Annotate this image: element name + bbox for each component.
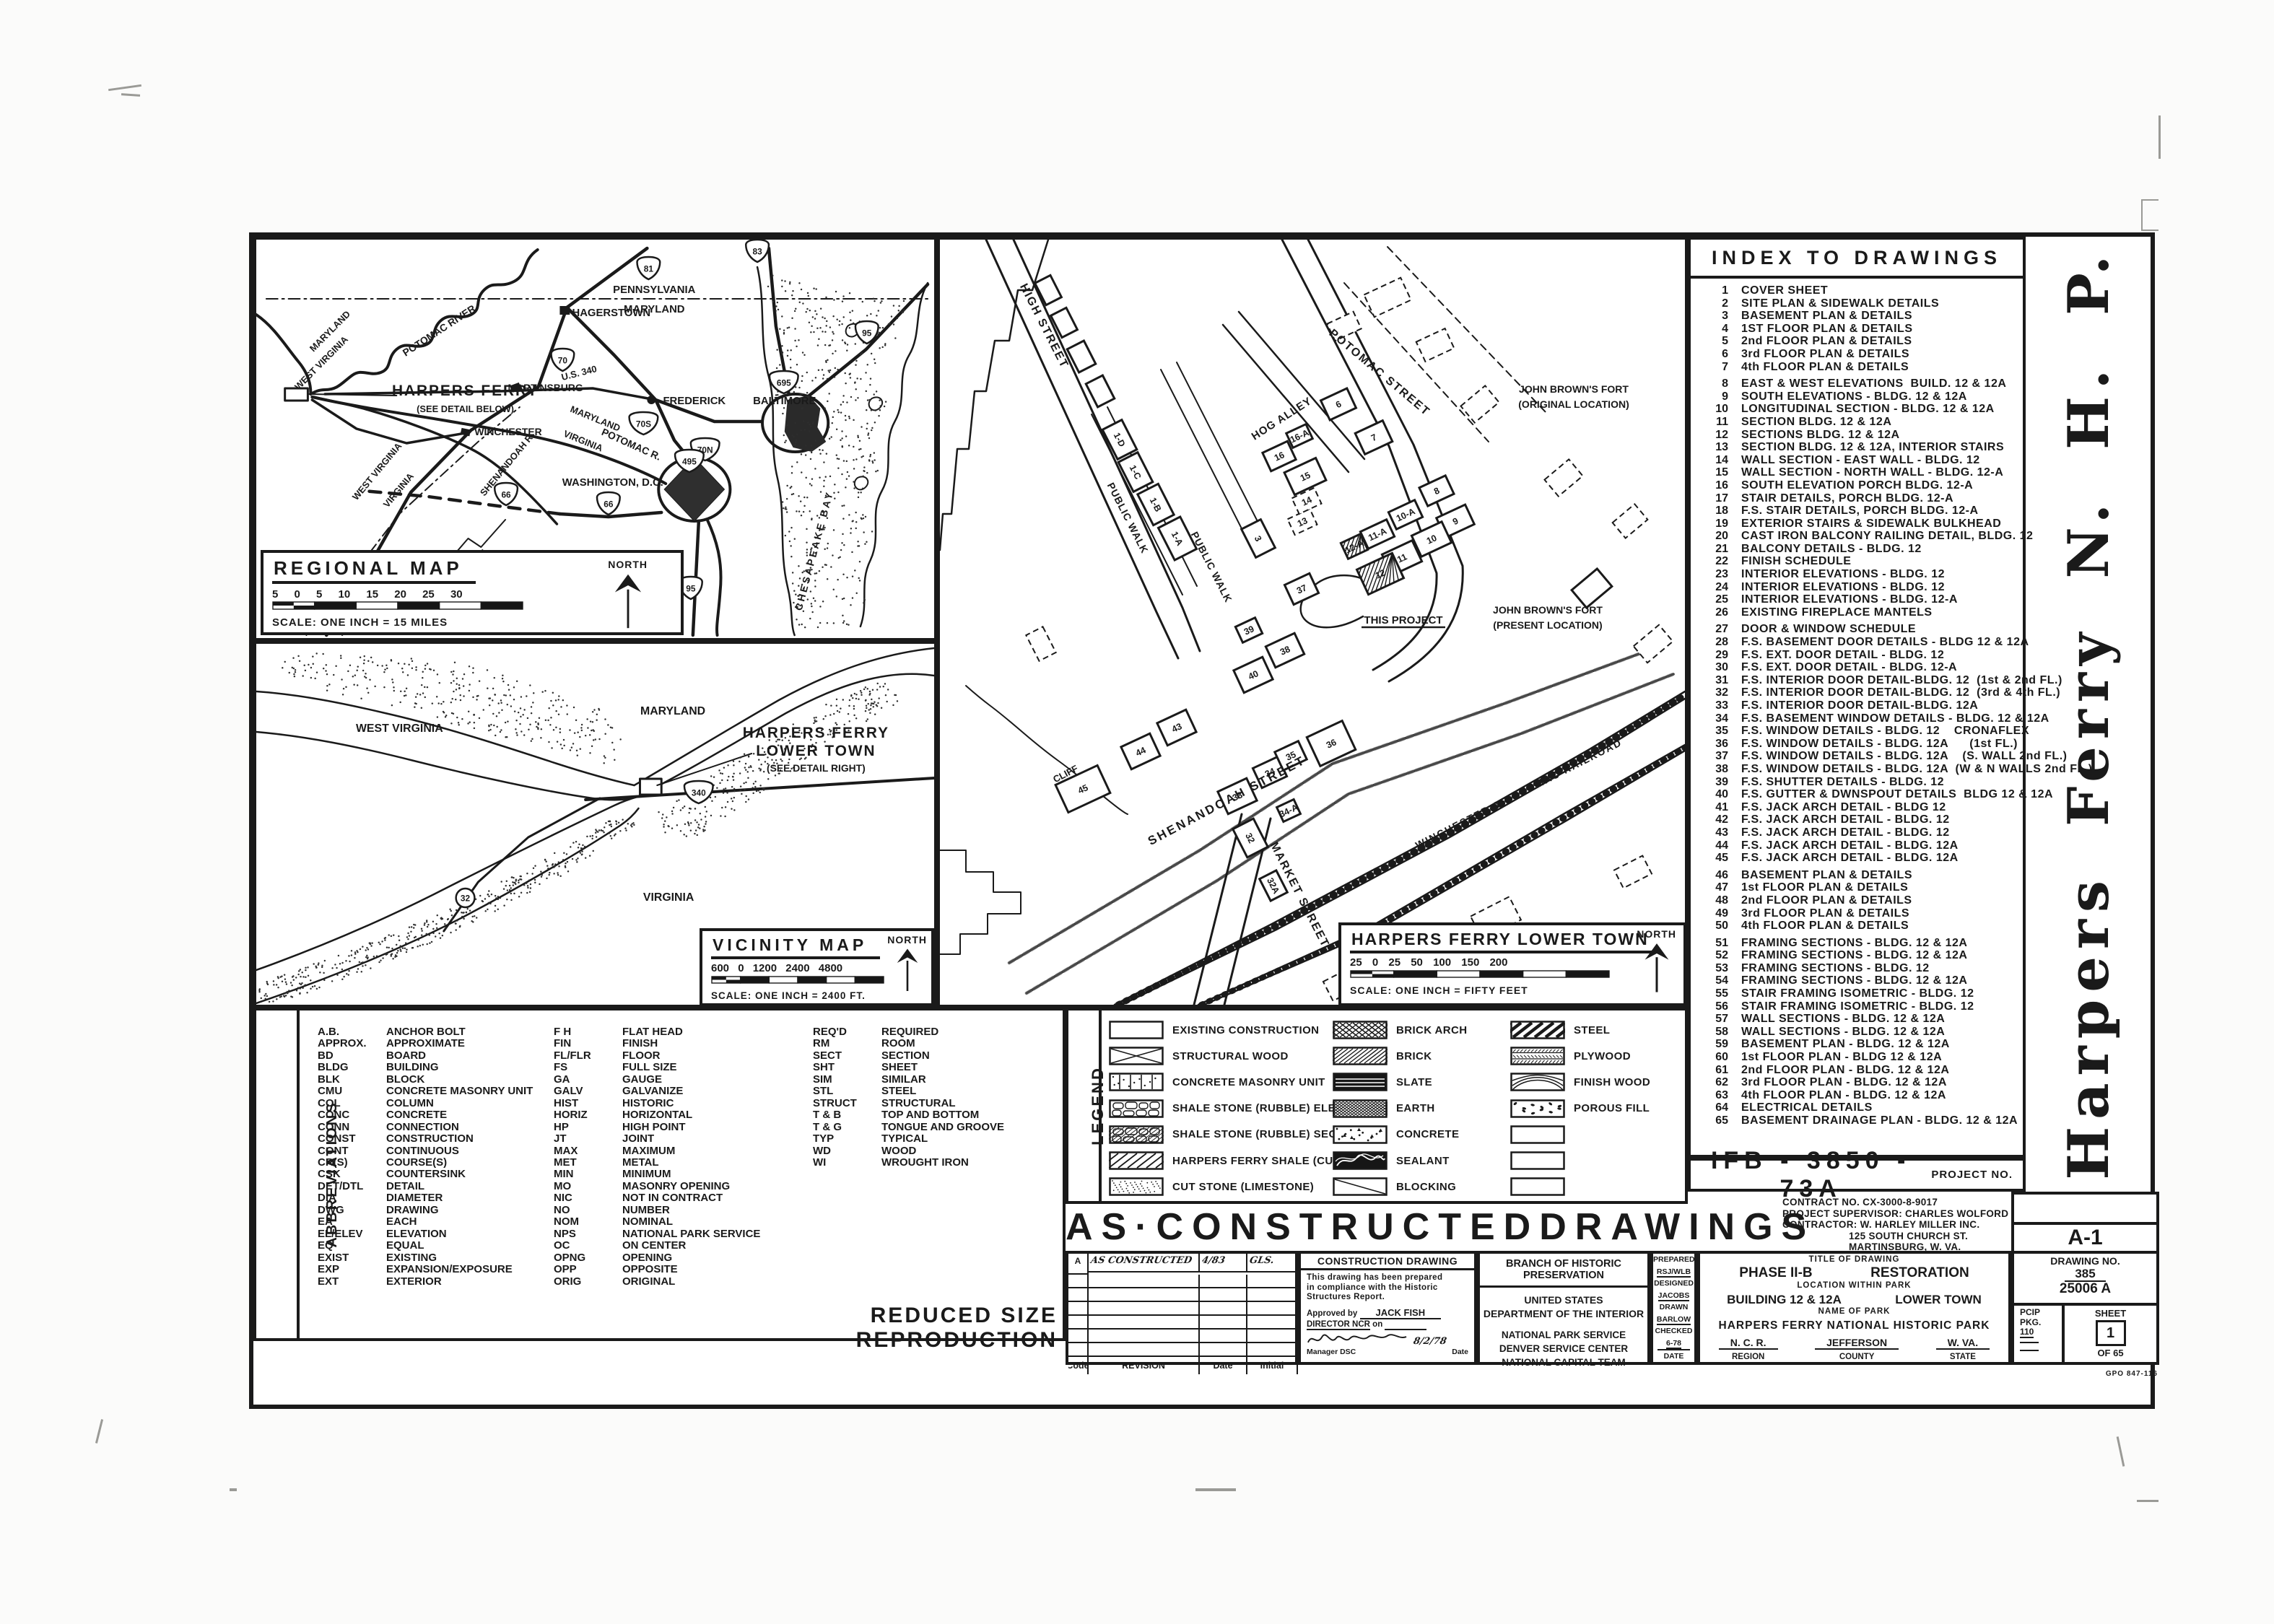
revision-cell	[1068, 1330, 1089, 1343]
legend-item	[1510, 1148, 1650, 1174]
abbreviation-row: STLSTEEL	[813, 1086, 1004, 1097]
index-item-number: 5	[1691, 335, 1728, 348]
abbreviation-row: RMROOM	[813, 1038, 1004, 1049]
lower-town-scale-bar	[1350, 970, 1610, 978]
legend-swatch-plywood	[1510, 1047, 1565, 1065]
building	[1461, 385, 1499, 422]
legend-label: HARPERS FERRY SHALE (CUT)	[1172, 1155, 1344, 1167]
abbreviation: MIN	[554, 1169, 622, 1180]
abbreviation-term: BLOCK	[386, 1074, 424, 1086]
branch-line: UNITED STATES	[1480, 1293, 1647, 1307]
map-label: VIRGINIA	[643, 891, 694, 904]
abbreviation: OPNG	[554, 1252, 622, 1264]
index-item-title: 2nd FLOOR PLAN & DETAILS	[1741, 335, 1912, 348]
index-item: 37F.S. WINDOW DETAILS - BLDG. 12A (S. WA…	[1691, 750, 2023, 763]
index-item: 33F.S. INTERIOR DOOR DETAIL-BLDG. 12A	[1691, 699, 2023, 712]
pkg-number: 110	[2020, 1327, 2034, 1338]
legend-swatch-crosshatch	[1333, 1021, 1388, 1039]
index-item-number: 38	[1691, 763, 1728, 776]
branch-line: DEPARTMENT OF THE INTERIOR	[1480, 1307, 1647, 1321]
abbreviation: CSK	[318, 1169, 386, 1180]
region-value: N. C. R.	[1719, 1337, 1778, 1350]
legend-col-3: STEELPLYWOODFINISH WOODPOROUS FILL	[1510, 1017, 1650, 1200]
abbrev-col-2: F HFLAT HEADFINFINISHFL/FLRFLOORFSFULL S…	[554, 1026, 760, 1288]
index-item-number: 60	[1691, 1051, 1728, 1064]
main-title-part2: DRAWINGS	[1539, 1205, 1815, 1249]
index-item: 15WALL SECTION - NORTH WALL - BLDG. 12-A	[1691, 466, 2023, 479]
county-value: JEFFERSON	[1815, 1337, 1899, 1350]
prepared-value-text: RSJ/WLB	[1657, 1267, 1691, 1278]
index-item-number: 65	[1691, 1114, 1728, 1127]
abbreviation-term: DIAMETER	[386, 1192, 443, 1204]
abbreviation-row: REQ'DREQUIRED	[813, 1026, 1004, 1038]
index-item: 12SECTIONS BLDG. 12 & 12A	[1691, 429, 2023, 442]
legend-item: HARPERS FERRY SHALE (CUT)	[1109, 1148, 1344, 1174]
abbreviation: NO	[554, 1205, 622, 1216]
index-item: 45F.S. JACK ARCH DETAIL - BLDG. 12A	[1691, 852, 2023, 865]
index-item-title: 1st FLOOR PLAN - BLDG 12 & 12A	[1741, 1051, 1942, 1064]
building-1-D: 1-D	[1102, 420, 1137, 460]
index-item-number: 2	[1691, 297, 1728, 310]
abbreviation-row: WDWOOD	[813, 1145, 1004, 1157]
scan-artifact	[1195, 1488, 1236, 1491]
index-item-number: 62	[1691, 1076, 1728, 1089]
index-item-title: 4th FLOOR PLAN - BLDG. 12 & 12A	[1741, 1089, 1946, 1102]
index-item-number: 30	[1691, 661, 1728, 674]
index-item-number: 21	[1691, 543, 1728, 556]
index-item-title: BASEMENT PLAN & DETAILS	[1741, 310, 1912, 323]
legend-swatch-slate	[1333, 1073, 1388, 1091]
abbreviation: CMU	[318, 1086, 386, 1097]
index-item: 74th FLOOR PLAN & DETAILS	[1691, 361, 2023, 374]
svg-text:66: 66	[604, 499, 614, 509]
index-item-title: EAST & WEST ELEVATIONS BUILD. 12 & 12A	[1741, 377, 2006, 390]
legend-swatch-stipple	[1109, 1177, 1164, 1196]
prepared-value: JACOBS	[1653, 1290, 1694, 1302]
director-title: DIRECTOR NCR	[1307, 1320, 1370, 1330]
building-40: 40	[1234, 657, 1273, 692]
sheet-of-label: OF 65	[2065, 1348, 2156, 1358]
branch-line: DENVER SERVICE CENTER	[1480, 1342, 1647, 1355]
branch-line: NATIONAL CAPITAL TEAM	[1480, 1355, 1647, 1369]
index-item: 56STAIR FRAMING ISOMETRIC - BLDG. 12	[1691, 1000, 2023, 1013]
index-item-title: 1st FLOOR PLAN & DETAILS	[1741, 881, 1908, 894]
index-item-title: F.S. JACK ARCH DETAIL - BLDG. 12	[1741, 826, 1950, 839]
index-item: 36F.S. WINDOW DETAILS - BLDG. 12A (1st F…	[1691, 738, 2023, 751]
construction-box-title: CONSTRUCTION DRAWING	[1301, 1255, 1474, 1270]
index-item-title: 1ST FLOOR PLAN & DETAILS	[1741, 323, 1912, 336]
index-item: 11SECTION BLDG. 12 & 12A	[1691, 416, 2023, 429]
index-item-title: ELECTRICAL DETAILS	[1741, 1101, 1873, 1114]
abbreviation-term: BUILDING	[386, 1062, 439, 1073]
index-item: 30F.S. EXT. DOOR DETAIL - BLDG. 12-A	[1691, 661, 2023, 674]
abbreviation-term: MASONRY OPENING	[622, 1181, 730, 1192]
index-item-number: 35	[1691, 725, 1728, 738]
abbreviation-term: TYPICAL	[881, 1133, 928, 1145]
sheet-count-box: SHEET 1 OF 65	[2065, 1306, 2156, 1362]
hagerstown-city-dot	[559, 306, 570, 315]
index-item: 623rd FLOOR PLAN - BLDG. 12 & 12A	[1691, 1076, 2023, 1089]
abbreviation-row: BDBOARD	[318, 1050, 533, 1062]
index-item-number: 48	[1691, 894, 1728, 907]
state-label: STATE	[1950, 1353, 1976, 1361]
abbreviation-row: FL/FLRFLOOR	[554, 1050, 760, 1062]
index-item-title: DOOR & WINDOW SCHEDULE	[1741, 623, 1916, 636]
lower-town-map-panel: 1-D1-C1-B1-A367891010-A1111-A1212-A13141…	[937, 237, 1688, 1008]
park-name-strip: Harpers Ferry N. H. P.	[2018, 237, 2159, 1192]
abbreviation: ORIG	[554, 1276, 622, 1288]
legend-swatch-blank	[1109, 1021, 1164, 1039]
pcip-label: PCIP	[2020, 1308, 2062, 1318]
abbreviation: T & B	[813, 1109, 881, 1121]
abbreviation-term: WROUGHT IRON	[881, 1157, 969, 1169]
contractor: CONTRACTOR: W. HARLEY MILLER INC.	[1782, 1219, 2009, 1231]
abbreviation-term: CONTINUOUS	[386, 1145, 459, 1157]
sheet-label: SHEET	[2065, 1308, 2156, 1319]
legend-item: STEEL	[1510, 1017, 1650, 1043]
revision-cell	[1200, 1330, 1247, 1343]
route-shield-83: 83	[746, 240, 769, 262]
abbreviation-row: MOMASONRY OPENING	[554, 1181, 760, 1192]
abbreviation-row: FSFULL SIZE	[554, 1062, 760, 1073]
building-39: 39	[1235, 618, 1262, 642]
index-item: 24INTERIOR ELEVATIONS - BLDG. 12	[1691, 581, 2023, 594]
abbreviation: COL	[318, 1098, 386, 1109]
index-item: 38F.S. WINDOW DETAILS - BLDG. 12A (W & N…	[1691, 763, 2023, 776]
abbreviation: WD	[813, 1145, 881, 1157]
abbreviation-row: NOMNOMINAL	[554, 1216, 760, 1228]
legend-item: STRUCTURAL WOOD	[1109, 1043, 1344, 1069]
svg-text:495: 495	[682, 456, 697, 466]
revision-cell	[1247, 1330, 1298, 1343]
map-label: FREDERICK	[663, 395, 726, 407]
index-item-number: 27	[1691, 623, 1728, 636]
index-item-number: 11	[1691, 416, 1728, 429]
regional-map-north: NORTH	[608, 559, 648, 633]
building-3: 3	[1242, 520, 1276, 558]
abbreviation-term: HORIZONTAL	[622, 1109, 692, 1121]
building	[1416, 328, 1455, 362]
index-item: 65BASEMENT DRAINAGE PLAN - BLDG. 12 & 12…	[1691, 1114, 2023, 1127]
abbreviation: REQ'D	[813, 1026, 881, 1038]
map-label: HARPERS FERRY	[392, 383, 539, 399]
index-item-number: 26	[1691, 606, 1728, 619]
abbreviation: F H	[554, 1026, 622, 1038]
prepared-label: PREPARED	[1653, 1254, 1694, 1266]
project-number-box: IFB - 3850 - 73A PROJECT NO.	[1688, 1158, 2026, 1192]
index-item-title: F.S. JACK ARCH DETAIL - BLDG. 12A	[1741, 852, 1959, 865]
legend-label: POROUS FILL	[1574, 1102, 1650, 1114]
building-34-A: 34-A	[1276, 799, 1301, 821]
map-label: WINCHESTER & POTOMAC RAILROAD	[1413, 736, 1624, 851]
index-item-title: INTERIOR ELEVATIONS - BLDG. 12	[1741, 581, 1945, 594]
abbreviation: OC	[554, 1240, 622, 1252]
abbreviation-row: DIADIAMETER	[318, 1192, 533, 1204]
shenandoah-shore-1	[256, 797, 637, 970]
legend-col-2: BRICK ARCHBRICKSLATEEARTHCONCRETESEALANT…	[1333, 1017, 1467, 1200]
legend-label: CONCRETE	[1396, 1128, 1459, 1140]
legend-label: BRICK	[1396, 1050, 1432, 1062]
abbreviation: BLDG	[318, 1062, 386, 1073]
index-item-title: LONGITUDINAL SECTION - BLDG. 12 & 12A	[1741, 403, 1995, 416]
revision-cell	[1089, 1343, 1200, 1357]
index-item-number: 34	[1691, 712, 1728, 725]
contract-no: CONTRACT NO. CX-3000-8-9017	[1782, 1197, 2009, 1208]
abbreviation-term: STEEL	[881, 1086, 916, 1097]
abbreviation-row: SHTSHEET	[813, 1062, 1004, 1073]
pcip-pkg-box: PCIP PKG. 110	[2014, 1306, 2065, 1362]
index-item-title: F.S. JACK ARCH DETAIL - BLDG. 12A	[1741, 839, 1959, 852]
branch-title: BRANCH OF HISTORIC PRESERVATION	[1480, 1254, 1647, 1288]
abbreviation-row: MAXMAXIMUM	[554, 1145, 760, 1157]
abbreviation-term: CONSTRUCTION	[386, 1133, 474, 1145]
route-shield-695: 695	[770, 371, 798, 393]
abbreviation-row: TYPTYPICAL	[813, 1133, 1004, 1145]
legend-swatch-porous	[1510, 1099, 1565, 1118]
revision-cell: Code	[1068, 1357, 1089, 1374]
abbreviation-term: OPPOSITE	[622, 1264, 678, 1275]
legend-item: POROUS FILL	[1510, 1096, 1650, 1122]
approval-date-handwritten: 8/2/78	[1413, 1336, 1447, 1347]
legend-item: BLOCKING	[1333, 1174, 1467, 1200]
abbreviation: EL/ELEV	[318, 1228, 386, 1240]
secondary-road	[444, 798, 600, 931]
index-item: 46BASEMENT PLAN & DETAILS	[1691, 869, 2023, 882]
legend-label: STRUCTURAL WOOD	[1172, 1050, 1289, 1062]
index-item: 57WALL SECTIONS - BLDG. 12 & 12A	[1691, 1013, 2023, 1026]
index-item-number: 17	[1691, 492, 1728, 505]
index-item-title: SOUTH ELEVATIONS - BLDG. 12 & 12A	[1741, 390, 1967, 403]
legend-swatch-cmu	[1109, 1073, 1164, 1091]
legend-item: FINISH WOOD	[1510, 1069, 1650, 1095]
north-arrow-icon	[612, 570, 644, 631]
svg-text:95: 95	[686, 583, 696, 593]
abbreviation-term: FULL SIZE	[622, 1062, 677, 1073]
abbreviation: BLK	[318, 1074, 386, 1086]
lower-town-label: LOWER TOWN	[1895, 1293, 1982, 1307]
abbreviation: NOM	[554, 1216, 622, 1228]
abbreviation: HORIZ	[554, 1109, 622, 1121]
abbreviation-term: EACH	[386, 1216, 417, 1228]
index-item-title: F.S. STAIR DETAILS, PORCH BLDG. 12-A	[1741, 505, 1979, 518]
index-item-title: STAIR DETAILS, PORCH BLDG. 12-A	[1741, 492, 1953, 505]
lower-town-scale-note: SCALE: ONE INCH = FIFTY FEET	[1350, 985, 1675, 996]
drawing-number-column: A-1 DRAWING NO. 385 25006 A PCIP PKG. 11…	[2011, 1192, 2159, 1365]
index-item-title: WALL SECTIONS - BLDG. 12 & 12A	[1741, 1013, 1945, 1026]
index-item-title: BALCONY DETAILS - BLDG. 12	[1741, 543, 1922, 556]
construction-note-line: Structures Report.	[1307, 1293, 1468, 1303]
revision-cell: Initial	[1247, 1357, 1298, 1374]
date-label: Date	[1452, 1348, 1468, 1356]
abbreviation-term: COURSE(S)	[386, 1157, 447, 1169]
map-label: (PRESENT LOCATION)	[1493, 619, 1602, 631]
abbreviation-row: SECTSECTION	[813, 1050, 1004, 1062]
shenandoah-river	[313, 397, 557, 524]
abbreviation-term: EXISTING	[386, 1252, 437, 1264]
index-item-number: 58	[1691, 1026, 1728, 1039]
index-item-number: 39	[1691, 776, 1728, 789]
abbreviation: T & G	[813, 1122, 881, 1133]
index-item: 14WALL SECTION - EAST WALL - BLDG. 12	[1691, 454, 2023, 467]
legend-side-label: LEGEND	[1089, 1066, 1107, 1145]
abbreviation-row: EXISTEXISTING	[318, 1252, 533, 1264]
abbreviation: FL/FLR	[554, 1050, 622, 1062]
abbreviation: FS	[554, 1062, 622, 1073]
revision-cell: Date	[1200, 1357, 1247, 1374]
abbreviation-row: OPNGOPENING	[554, 1252, 760, 1264]
prepared-label: DESIGNED	[1653, 1278, 1694, 1290]
index-item: 64ELECTRICAL DETAILS	[1691, 1101, 2023, 1114]
abbreviation-term: EXPANSION/EXPOSURE	[386, 1264, 513, 1275]
abbreviation: MET	[554, 1157, 622, 1169]
index-item: 612nd FLOOR PLAN - BLDG. 12 & 12A	[1691, 1064, 2023, 1077]
abbreviation-term: CONCRETE	[386, 1109, 447, 1121]
index-item-number: 6	[1691, 348, 1728, 361]
legend-col-1: EXISTING CONSTRUCTIONSTRUCTURAL WOODCONC…	[1109, 1017, 1344, 1200]
index-item: 1COVER SHEET	[1691, 284, 2023, 297]
index-item: 35F.S. WINDOW DETAILS - BLDG. 12 CRONAFL…	[1691, 725, 2023, 738]
park-name-vertical-title: Harpers Ferry N. H. P.	[2056, 248, 2122, 1180]
index-item: 28F.S. BASEMENT DOOR DETAILS - BLDG 12 &…	[1691, 636, 2023, 649]
abbreviation-term: OPENING	[622, 1252, 672, 1264]
index-item-number: 45	[1691, 852, 1728, 865]
index-item: 54FRAMING SECTIONS - BLDG. 12 & 12A	[1691, 974, 2023, 987]
abbreviation: CONST	[318, 1133, 386, 1145]
manager-signature	[1307, 1331, 1408, 1347]
index-item-title: F.S. INTERIOR DOOR DETAIL-BLDG. 12 (1st …	[1741, 674, 2062, 687]
abbreviation-row: STRUCTSTRUCTURAL	[813, 1098, 1004, 1109]
drawing-number-box: DRAWING NO. 385 25006 A	[2014, 1254, 2156, 1306]
route-340-road	[585, 778, 934, 800]
abbreviation: JT	[554, 1133, 622, 1145]
abbreviation: HIST	[554, 1098, 622, 1109]
legend-swatch-rubble_sect	[1109, 1125, 1164, 1144]
abbreviation-term: COUNTERSINK	[386, 1169, 466, 1180]
building	[1086, 375, 1115, 407]
abbreviations-divider	[297, 1010, 300, 1338]
index-item-title: FRAMING SECTIONS - BLDG. 12 & 12A	[1741, 937, 1967, 950]
legend-item: PLYWOOD	[1510, 1043, 1650, 1069]
abbreviation-row: CMUCONCRETE MASONRY UNIT	[318, 1086, 533, 1097]
legend-label: EARTH	[1396, 1102, 1435, 1114]
legend-item: SEALANT	[1333, 1148, 1467, 1174]
abbreviation: OPP	[554, 1264, 622, 1275]
index-item-number: 52	[1691, 949, 1728, 962]
revision-cell	[1089, 1275, 1200, 1288]
index-item-title: F.S. SHUTTER DETAILS - BLDG. 12	[1741, 776, 1944, 789]
title-of-drawing-box: TITLE OF DRAWING PHASE II-B RESTORATION …	[1697, 1251, 2011, 1365]
index-item-title: CAST IRON BALCONY RAILING DETAIL, BLDG. …	[1741, 530, 2033, 543]
svg-text:70S: 70S	[636, 419, 651, 429]
legend-item: EARTH	[1333, 1096, 1467, 1122]
index-item-number: 12	[1691, 429, 1728, 442]
abbreviation-row: NPSNATIONAL PARK SERVICE	[554, 1228, 760, 1240]
index-item: 52FRAMING SECTIONS - BLDG. 12 & 12A	[1691, 949, 2023, 962]
abbreviation-row: MINMINIMUM	[554, 1169, 760, 1180]
prepared-value: RSJ/WLB	[1653, 1266, 1694, 1278]
revision-table: AAS CONSTRUCTED4/83GLS.CodeREVISIONDateI…	[1066, 1251, 1298, 1365]
legend-label: SHALE STONE (RUBBLE) SECT	[1172, 1128, 1343, 1140]
abbreviation: CONC	[318, 1109, 386, 1121]
index-item-number: 47	[1691, 881, 1728, 894]
legend-divider	[1099, 1010, 1102, 1201]
abbreviation: BD	[318, 1050, 386, 1062]
index-item: 41F.S. JACK ARCH DETAIL - BLDG 12	[1691, 801, 2023, 814]
abbreviation-row: CR(S)COURSE(S)	[318, 1157, 533, 1169]
lower-town-title: HARPERS FERRY LOWER TOWN	[1350, 930, 1662, 953]
project-number: IFB - 3850 - 73A	[1691, 1147, 1931, 1203]
index-item-number: 13	[1691, 441, 1728, 454]
scanned-drawing-page: PENNSYLVANIAMARYLANDHAGERSTOWNMARTINSBUR…	[0, 0, 2274, 1624]
abbreviation: CONN	[318, 1122, 386, 1133]
abbreviation-term: TOP AND BOTTOM	[881, 1109, 979, 1121]
harpers-ferry-box	[285, 388, 308, 401]
abbreviation-row: OPPOPPOSITE	[554, 1264, 760, 1275]
abbreviation-term: STRUCTURAL	[881, 1098, 956, 1109]
legend-swatch-steel	[1510, 1021, 1565, 1039]
prepared-date-label: DATE	[1653, 1350, 1694, 1363]
abbreviation-row: T & BTOP AND BOTTOM	[813, 1109, 1004, 1121]
index-item: 3BASEMENT PLAN & DETAILS	[1691, 310, 2023, 323]
map-label: (SEE DETAIL RIGHT)	[767, 762, 866, 774]
legend-swatch-sealant	[1333, 1151, 1388, 1170]
index-item-title: 2nd FLOOR PLAN - BLDG. 12 & 12A	[1741, 1064, 1949, 1077]
building-43: 43	[1157, 710, 1196, 745]
winchester-city-dot	[461, 428, 471, 437]
drawing-sheet-frame: PENNSYLVANIAMARYLANDHAGERSTOWNMARTINSBUR…	[249, 232, 2155, 1409]
abbreviation-row: EQEQUAL	[318, 1240, 533, 1252]
abbreviation-term: NATIONAL PARK SERVICE	[622, 1228, 760, 1240]
index-item-title: FINISH SCHEDULE	[1741, 555, 1851, 568]
legend-swatch-concrete	[1333, 1125, 1388, 1144]
index-item-title: SITE PLAN & SIDEWALK DETAILS	[1741, 297, 1939, 310]
index-item: 58WALL SECTIONS - BLDG. 12 & 12A	[1691, 1026, 2023, 1039]
svg-text:32: 32	[461, 893, 471, 903]
index-item: 55STAIR FRAMING ISOMETRIC - BLDG. 12	[1691, 987, 2023, 1000]
revision-cell	[1200, 1316, 1247, 1330]
legend-item: SHALE STONE (RUBBLE) SECT	[1109, 1122, 1344, 1148]
lower-town-title-box: HARPERS FERRY LOWER TOWN 25 0 25 50 100 …	[1338, 922, 1686, 1006]
map-label: JOHN BROWN'S FORT	[1519, 383, 1629, 395]
abbreviation-row: WIWROUGHT IRON	[813, 1157, 1004, 1169]
index-item: 18F.S. STAIR DETAILS, PORCH BLDG. 12-A	[1691, 505, 2023, 518]
route-shield-66: 66	[495, 483, 518, 505]
map-label: HARPERS FERRY	[743, 725, 889, 741]
abbreviation: DIA	[318, 1192, 386, 1204]
sheet-number: 1	[2096, 1320, 2126, 1346]
abbreviation-term: MINIMUM	[622, 1169, 671, 1180]
on-label: on	[1372, 1320, 1382, 1329]
index-item-title: FRAMING SECTIONS - BLDG. 12 & 12A	[1741, 974, 1967, 987]
manager-label: Manager DSC	[1307, 1348, 1356, 1356]
legend-swatch-xbox	[1109, 1047, 1164, 1065]
index-item: 40F.S. GUTTER & DWNSPOUT DETAILS BLDG 12…	[1691, 788, 2023, 801]
abbreviation-term: FLAT HEAD	[622, 1026, 683, 1038]
revision-cell	[1068, 1316, 1089, 1330]
svg-text:83: 83	[752, 246, 762, 256]
index-item-title: F.S. EXT. DOOR DETAIL - BLDG. 12	[1741, 649, 1944, 662]
index-item-title: F.S. WINDOW DETAILS - BLDG. 12A (1st FL.…	[1741, 738, 2018, 751]
legend-swatch-earth	[1333, 1099, 1388, 1118]
index-item-title: F.S. BASEMENT DOOR DETAILS - BLDG 12 & 1…	[1741, 636, 2029, 649]
index-item: 2SITE PLAN & SIDEWALK DETAILS	[1691, 297, 2023, 310]
index-item: 9SOUTH ELEVATIONS - BLDG. 12 & 12A	[1691, 390, 2023, 403]
prepared-value: BARLOW	[1653, 1314, 1694, 1326]
legend-label: SEALANT	[1396, 1155, 1450, 1167]
index-item: 20CAST IRON BALCONY RAILING DETAIL, BLDG…	[1691, 530, 2023, 543]
location-within-park: LOCATION WITHIN PARK	[1700, 1281, 2008, 1290]
index-item-title: SECTIONS BLDG. 12 & 12A	[1741, 429, 1900, 442]
